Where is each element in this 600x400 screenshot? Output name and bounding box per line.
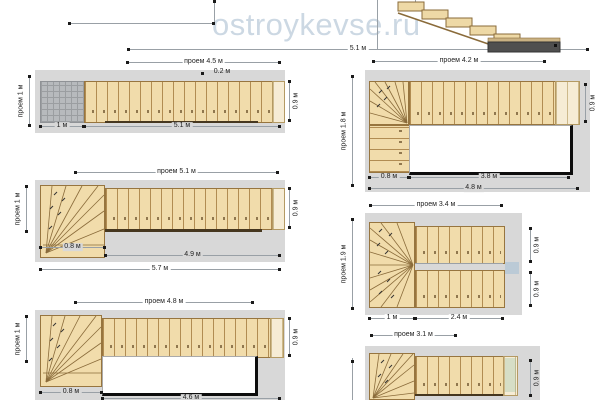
r1-upper-step-numbers — [413, 112, 553, 115]
l2-total-dim: 5.7 м — [40, 269, 280, 270]
l3-step-numbers — [106, 345, 268, 348]
l2-left-opening-label: проем 1 м — [15, 193, 22, 226]
r1-total-dim: 4.8 м — [369, 188, 578, 189]
l3-opening-label: проем 4.8 м — [143, 298, 186, 306]
l2-winder-dim: 0.8 м — [40, 247, 105, 248]
r2-upper-step-numbers — [419, 251, 501, 254]
r1-left-opening-dim — [352, 76, 353, 186]
r1-width-label: 0.9 м — [590, 95, 597, 112]
l1-total-dim: 5.1 м — [84, 126, 280, 127]
r2-winder-dim: 1 м — [369, 318, 415, 319]
l3-stairwell-opening — [102, 356, 258, 396]
l1-width-label: 0.9 м — [293, 93, 300, 110]
l3-winder-steps — [40, 315, 102, 387]
r2-left-opening-dim — [352, 219, 353, 309]
r2-upper-flight — [415, 226, 505, 264]
section-leader-line-2 — [377, 0, 378, 49]
l3-winder-dim-label: 0.8 м — [61, 388, 82, 396]
l2-stringer-shadow — [105, 229, 262, 232]
r2-opening-dim: проем 3.4 м — [370, 205, 502, 206]
section-total-length-label: 5.1 м — [348, 45, 369, 53]
l3-flight-dim-label: 4.6 м — [181, 394, 202, 400]
l3-flight-end — [270, 318, 284, 358]
r2-flight-dim-label: 2.4 м — [449, 314, 470, 322]
section-dim-line-upper — [69, 23, 214, 24]
stair-section-view — [396, 0, 564, 54]
l1-landing-dim-label: 1 м — [55, 122, 70, 130]
l2-opening-dim: проем 5.1 м — [75, 172, 278, 173]
l1-landing-dim: 1 м — [40, 126, 84, 127]
r3-left-opening-dim — [352, 358, 353, 400]
l1-flight-end — [272, 81, 285, 123]
l1-entry-landing — [40, 81, 86, 123]
l3-flight-dim: 4.6 м — [102, 398, 280, 399]
l2-straight-flight — [105, 188, 274, 230]
r2-winder-dim-label: 1 м — [385, 314, 400, 322]
r1-upper-flight — [409, 81, 557, 125]
l2-width-dim — [289, 188, 290, 228]
l1-tread-depth-label: 0.2 м — [212, 68, 233, 76]
r1-opening-dim: проем 4.2 м — [373, 61, 545, 62]
l1-total-dim-label: 5.1 м — [172, 122, 193, 130]
l2-flight-dim: 4.9 м — [105, 255, 280, 256]
r1-stairwell-opening — [409, 125, 573, 175]
r2-upper-width-label: 0.9 м — [534, 237, 541, 254]
l1-opening-label: проем 4.5 м — [182, 58, 225, 66]
r3-straight-flight — [415, 356, 505, 396]
l2-flight-end — [272, 188, 285, 230]
l1-left-opening-label: проем 1 м — [18, 85, 25, 118]
r2-left-opening-label: проем 1.9 м — [341, 245, 348, 284]
watermark-fragment — [505, 262, 519, 274]
l1-tread-marker — [201, 72, 204, 75]
l2-step-numbers — [109, 217, 270, 220]
r2-lower-flight — [415, 270, 505, 308]
r1-flight-dim: 3.8 м — [409, 177, 569, 178]
r2-flight-divider — [415, 263, 503, 264]
r3-winder-steps — [369, 353, 415, 400]
r2-opening-label: проем 3.4 м — [415, 201, 458, 209]
r1-lower-flight — [369, 125, 411, 173]
r2-lower-width-dim — [530, 272, 531, 306]
section-leader-line — [214, 0, 215, 23]
r3-stringer-shadow — [415, 394, 503, 396]
r3-step-numbers — [419, 383, 501, 386]
r1-left-opening-label: проем 1.8 м — [341, 112, 348, 151]
r1-lower-step-numbers — [399, 129, 402, 169]
r1-flight-dim-label: 3.8 м — [479, 173, 500, 181]
stair-layouts-figure: ostroykevse.ru 5.1 м проем 4.5 м проем 1… — [0, 0, 600, 400]
l2-total-dim-label: 5.7 м — [150, 265, 171, 273]
l3-left-opening-label: проем 1 м — [15, 323, 22, 356]
l3-left-opening-dim — [26, 316, 27, 362]
l3-width-dim — [289, 318, 290, 356]
r3-opening-label: проем 3.1 м — [392, 331, 435, 339]
l3-straight-flight — [102, 318, 272, 358]
l1-opening-dim: проем 4.5 м — [127, 62, 280, 63]
r2-winder-steps — [369, 222, 415, 308]
l1-straight-flight — [84, 81, 274, 123]
r3-left-dim-marker — [351, 360, 354, 363]
r2-flight-dim: 2.4 м — [415, 318, 503, 319]
r1-winder-dim: 0.8 м — [369, 177, 409, 178]
watermark-text: ostroykevse.ru — [212, 7, 421, 43]
r2-lower-step-numbers — [419, 295, 501, 298]
r3-width-label: 0.9 м — [534, 370, 541, 387]
r3-width-dim — [530, 360, 531, 396]
r1-width-dim — [585, 84, 586, 122]
r1-corner-winders — [369, 81, 409, 125]
l2-left-opening-dim — [26, 186, 27, 232]
l3-width-label: 0.9 м — [293, 329, 300, 346]
r1-total-dim-label: 4.8 м — [463, 184, 484, 192]
leader-end-marker — [213, 0, 216, 3]
l1-left-opening-dim — [29, 76, 30, 126]
r3-opening-dim: проем 3.1 м — [371, 335, 456, 336]
l3-winder-dim: 0.8 м — [40, 392, 102, 393]
l3-opening-dim: проем 4.8 м — [75, 302, 253, 303]
l2-width-label: 0.9 м — [293, 200, 300, 217]
r1-opening-label: проем 4.2 м — [438, 57, 481, 65]
l2-flight-dim-label: 4.9 м — [182, 251, 203, 259]
l1-width-dim — [289, 81, 290, 121]
r1-winder-dim-label: 0.8 м — [379, 173, 400, 181]
l2-winder-dim-label: 0.8 м — [62, 243, 83, 251]
l1-step-numbers — [88, 110, 270, 113]
r2-lower-width-label: 0.9 м — [534, 281, 541, 298]
watermark-fragment — [505, 358, 516, 392]
r2-upper-width-dim — [530, 228, 531, 262]
l2-opening-label: проем 5.1 м — [155, 168, 198, 176]
r1-flight-end — [555, 81, 580, 125]
